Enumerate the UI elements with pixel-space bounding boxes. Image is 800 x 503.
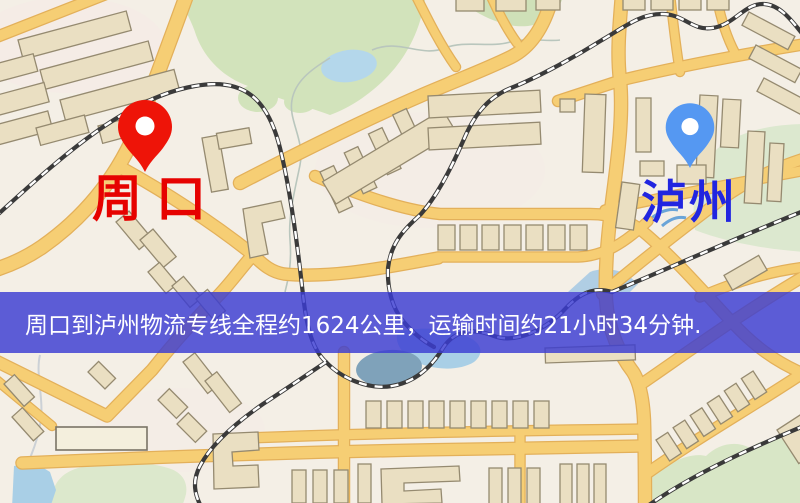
- route-info-text: 周口到泸州物流专线全程约1624公里，运输时间约21小时34分钟.: [0, 306, 701, 340]
- origin-label: 周口: [92, 174, 220, 224]
- destination-label: 泸州: [641, 179, 737, 225]
- map-canvas: [0, 0, 800, 503]
- route-info-banner: 周口到泸州物流专线全程约1624公里，运输时间约21小时34分钟.: [0, 292, 800, 353]
- map-screenshot: 周口 泸州 周口到泸州物流专线全程约1624公里，运输时间约21小时34分钟.: [0, 0, 800, 503]
